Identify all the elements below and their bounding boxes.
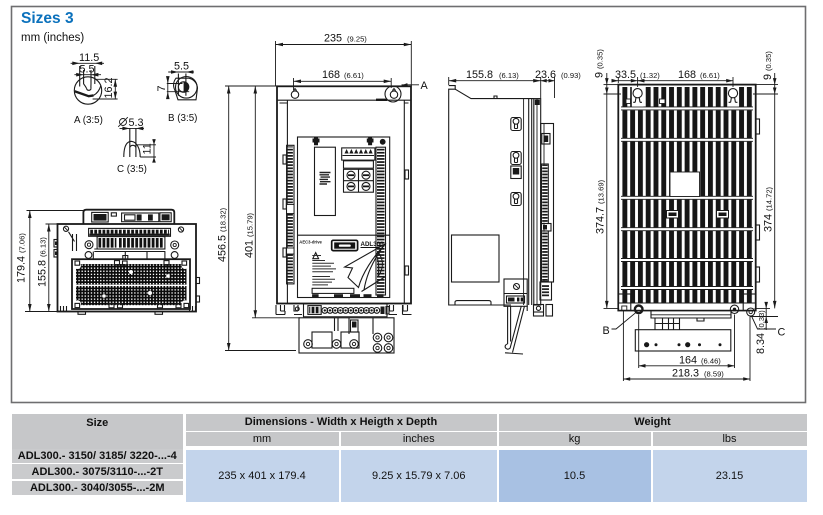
svg-text:235: 235 (324, 33, 342, 45)
svg-text:374 (14.72): 374 (14.72) (763, 186, 775, 232)
svg-text:7: 7 (156, 85, 168, 91)
svg-text:(6.46): (6.46) (701, 357, 721, 366)
svg-text:A: A (421, 80, 429, 92)
svg-text:B (3:5): B (3:5) (168, 113, 197, 124)
svg-text:AEC3-drive: AEC3-drive (299, 240, 322, 245)
svg-text:C: C (778, 327, 786, 339)
svg-text:(8.59): (8.59) (704, 370, 724, 379)
svg-text:(6.13): (6.13) (499, 71, 519, 80)
svg-text:9 (0.35): 9 (0.35) (593, 49, 605, 78)
svg-text:mm (inches): mm (inches) (21, 32, 84, 44)
svg-text:C (3:5): C (3:5) (117, 164, 147, 175)
svg-text:401 (15.79): 401 (15.79) (243, 212, 255, 258)
svg-text:16.2: 16.2 (103, 77, 115, 98)
svg-text:(6.61): (6.61) (344, 71, 364, 80)
svg-text:B: B (603, 325, 610, 337)
svg-text:A (3:5): A (3:5) (74, 115, 103, 126)
svg-text:(0.93): (0.93) (561, 71, 581, 80)
svg-text:179.4 (7.06): 179.4 (7.06) (16, 233, 28, 283)
svg-text:374.7 (13.69): 374.7 (13.69) (595, 179, 607, 234)
svg-text:168: 168 (322, 69, 340, 81)
svg-text:Sizes 3: Sizes 3 (21, 10, 74, 27)
svg-text:(1.32): (1.32) (640, 71, 660, 80)
svg-text:(9.25): (9.25) (347, 35, 367, 44)
svg-text:5.5: 5.5 (174, 61, 189, 73)
svg-text:456.5 (18.32): 456.5 (18.32) (217, 207, 229, 262)
svg-text:164: 164 (679, 355, 697, 367)
svg-text:168: 168 (678, 69, 696, 81)
svg-text:11.5: 11.5 (79, 52, 99, 64)
svg-text:9 (0.35): 9 (0.35) (762, 51, 774, 80)
svg-text:155.8: 155.8 (466, 69, 493, 81)
svg-text:(6.61): (6.61) (700, 71, 720, 80)
svg-text:5.5: 5.5 (80, 64, 95, 76)
svg-text:155.8 (6.13): 155.8 (6.13) (37, 237, 49, 287)
svg-text:23.6: 23.6 (535, 69, 556, 81)
svg-text:218.3: 218.3 (672, 368, 699, 380)
